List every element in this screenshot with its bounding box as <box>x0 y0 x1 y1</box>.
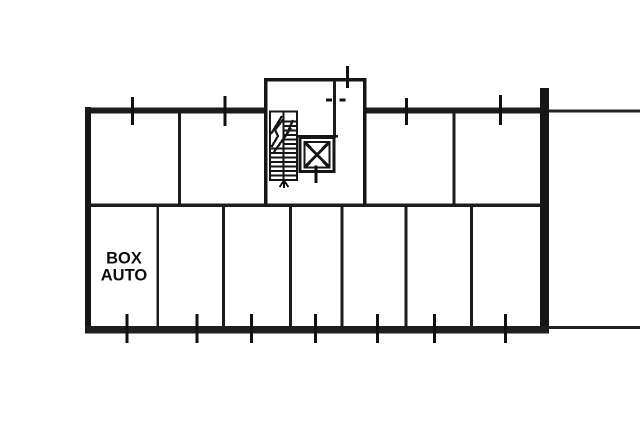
svg-text:AUTO: AUTO <box>101 267 148 285</box>
svg-text:BOX: BOX <box>106 250 142 268</box>
